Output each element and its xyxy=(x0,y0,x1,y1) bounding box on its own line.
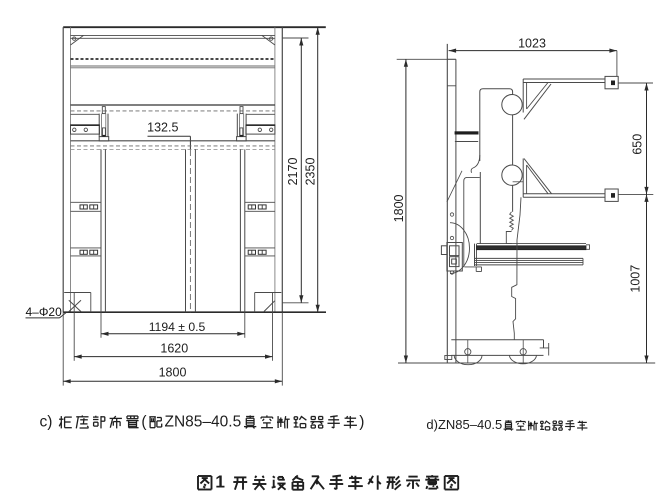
svg-text:1194 ± 0.5: 1194 ± 0.5 xyxy=(149,320,206,334)
svg-text:1620: 1620 xyxy=(160,342,188,356)
svg-text:d)ZN85–40.5: d)ZN85–40.5 xyxy=(426,417,502,432)
svg-text:132.5: 132.5 xyxy=(147,121,178,135)
svg-text:1: 1 xyxy=(215,472,225,492)
svg-text:1007: 1007 xyxy=(628,265,642,293)
svg-text:2350: 2350 xyxy=(304,158,318,186)
svg-text:ZN85–40.5: ZN85–40.5 xyxy=(165,414,242,431)
svg-text:650: 650 xyxy=(630,134,644,155)
svg-text:c): c) xyxy=(40,414,53,431)
svg-text:1800: 1800 xyxy=(159,366,187,380)
svg-text:1023: 1023 xyxy=(518,36,546,50)
svg-text:): ) xyxy=(359,414,364,431)
svg-text:4–Φ20: 4–Φ20 xyxy=(26,305,63,319)
svg-text:1800: 1800 xyxy=(392,194,406,222)
svg-text:(: ( xyxy=(141,414,147,431)
svg-text:2170: 2170 xyxy=(286,158,300,186)
